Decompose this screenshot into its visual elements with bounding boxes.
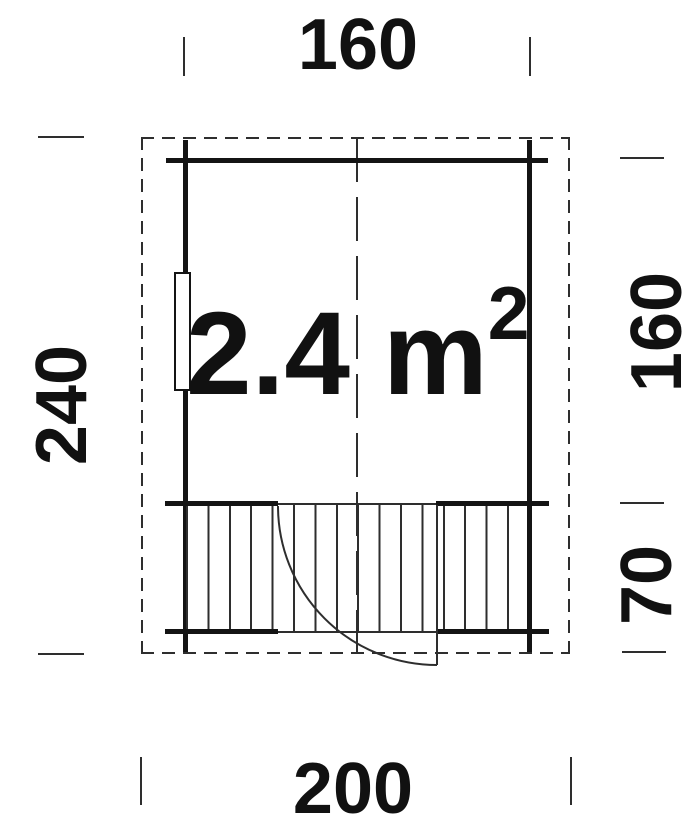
terrace-edge-bottom-right xyxy=(436,629,549,634)
dim-tick-top-right xyxy=(529,37,531,76)
overhang-outline-right xyxy=(568,137,570,654)
dim-tick-bottom-right xyxy=(570,757,572,805)
dim-tick-bottom-left xyxy=(140,757,142,805)
dim-label-left-depth: 240 xyxy=(22,295,102,515)
overhang-outline-left xyxy=(141,137,143,654)
area-label-base: 2.4 m xyxy=(186,288,488,420)
area-label: 2.4 m2 xyxy=(186,276,529,413)
dim-tick-top-left xyxy=(183,37,185,76)
dim-label-top-width: 160 xyxy=(248,5,468,85)
dim-label-right-upper-depth: 160 xyxy=(617,222,697,442)
dim-label-right-lower-depth: 70 xyxy=(607,475,687,695)
area-label-exponent: 2 xyxy=(488,271,530,355)
floor-plan-canvas: 160 200 240 160 70 2.4 m2 xyxy=(0,0,700,839)
dim-tick-left-bottom xyxy=(38,653,84,655)
door-swing-arc xyxy=(276,504,440,668)
terrace-edge-bottom-left xyxy=(165,629,278,634)
dim-label-bottom-width: 200 xyxy=(243,749,463,829)
dim-tick-left-top xyxy=(38,136,84,138)
dim-tick-right-top xyxy=(620,157,664,159)
terrace-edge-top-left xyxy=(165,501,278,506)
terrace-edge-top-right xyxy=(436,501,549,506)
wall-front xyxy=(166,158,548,163)
